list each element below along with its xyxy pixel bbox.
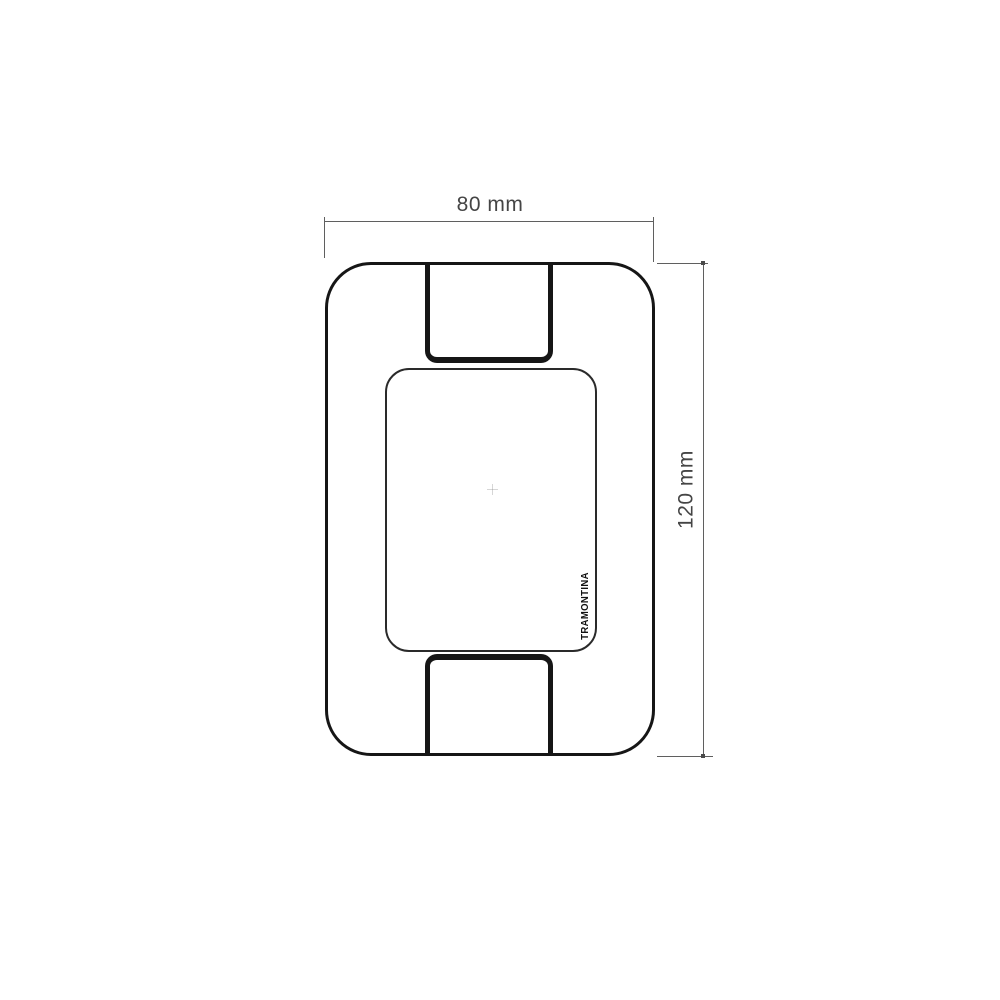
center-opening (385, 368, 597, 652)
width-dimension-line (325, 221, 654, 222)
bottom-module-cutout (425, 654, 553, 755)
top-module-cutout (425, 263, 553, 363)
brand-label: TRAMONTINA (577, 572, 595, 640)
height-dimension-line (703, 263, 704, 757)
height-dimension-tick-bottom (701, 754, 705, 758)
technical-drawing-canvas: 80 mm 120 mm TRAMONTINA (0, 0, 1000, 1000)
width-extension-line-right (653, 217, 654, 262)
width-extension-line-left (324, 217, 325, 258)
center-mark-icon (492, 484, 493, 495)
width-dimension-label: 80 mm (425, 193, 555, 217)
height-dimension-tick-top (701, 261, 705, 265)
height-dimension-label: 120 mm (674, 428, 699, 552)
